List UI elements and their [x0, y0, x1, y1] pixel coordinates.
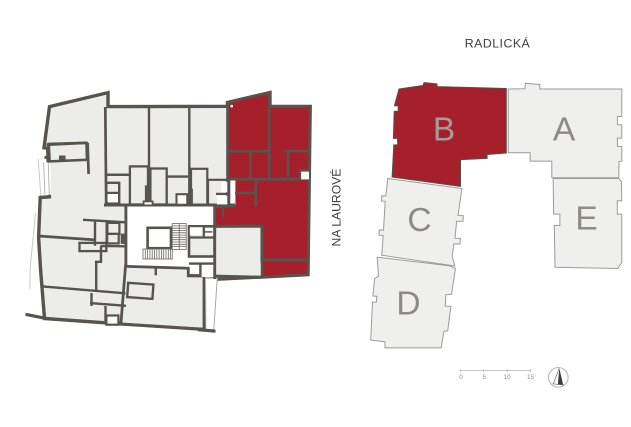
svg-text:0: 0: [459, 374, 463, 381]
svg-text:NA LAUROVÉ: NA LAUROVÉ: [329, 169, 344, 247]
svg-text:10: 10: [504, 374, 512, 381]
svg-text:D: D: [396, 286, 420, 323]
svg-text:C: C: [407, 202, 431, 239]
svg-text:5: 5: [482, 374, 486, 381]
svg-text:B: B: [433, 112, 455, 149]
svg-text:A: A: [553, 112, 576, 149]
svg-text:RADLICKÁ: RADLICKÁ: [465, 35, 531, 50]
svg-text:15: 15: [527, 374, 535, 381]
svg-text:E: E: [575, 201, 597, 238]
